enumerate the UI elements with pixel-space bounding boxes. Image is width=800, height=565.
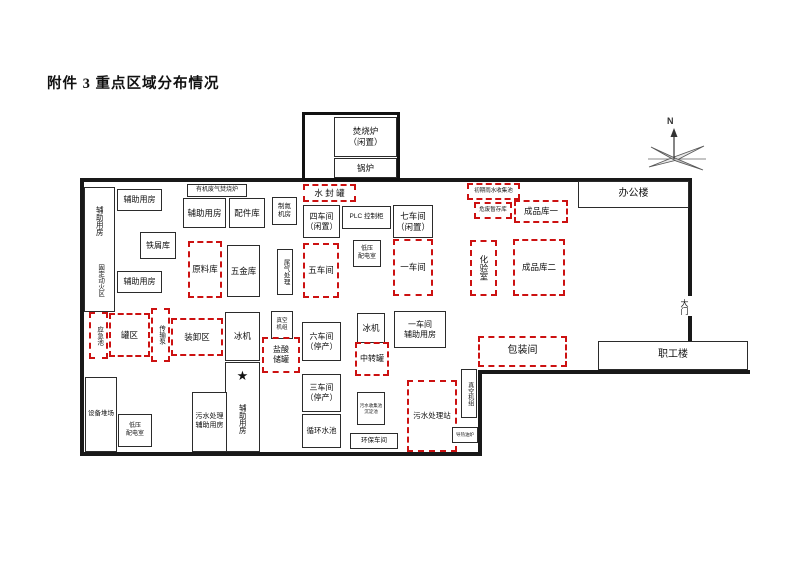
aux-room-north: 辅助用房 — [183, 198, 226, 228]
aux-room-west-label: 辅助用房 — [124, 277, 156, 287]
raw-material-warehouse: 原料库 — [188, 241, 222, 298]
workshop-7-idle: 七车间（闲置） — [393, 205, 433, 238]
compass: N — [648, 118, 708, 180]
tail-gas-treatment: 尾气处理 — [277, 249, 293, 295]
workshop-6-stopped-label: （停产） — [306, 342, 338, 352]
tank-farm: 罐区 — [109, 313, 150, 357]
hydrochloric-acid-tank: 盐酸储罐 — [262, 337, 300, 373]
loading-unloading-area: 装卸区 — [171, 318, 223, 356]
wall-bottom — [80, 452, 482, 456]
transfer-tank: 中转罐 — [355, 342, 389, 376]
aux-room-south-label: 辅助用房 — [238, 404, 247, 434]
staff-building: 职工楼 — [598, 341, 748, 370]
aux-room-west: 辅助用房 — [117, 271, 162, 293]
fixed-hotwork-zone: 固定动火区 — [88, 251, 111, 309]
aux-room-north-label: 辅助用房 — [187, 208, 221, 219]
transfer-tank-label: 中转罐 — [360, 354, 384, 364]
vacuum-unit-center: 真空机组 — [271, 311, 293, 339]
aux-room-south: 辅助用房 — [230, 390, 255, 448]
circulating-water-pool-label: 循环水池 — [307, 426, 337, 435]
incinerator-idle-label: （闲置） — [348, 137, 382, 148]
vacuum-unit-center-label: 真空 — [276, 318, 287, 325]
workshop-1-label: 一车间 — [400, 262, 426, 273]
vacuum-unit-east-label: 真空机组 — [465, 382, 473, 406]
transfer-pump-label: 传输泵 — [156, 325, 164, 345]
finished-goods-warehouse-2: 成品库二 — [513, 239, 565, 296]
sewage-treatment-aux-room: 污水处理辅助用房 — [192, 392, 227, 452]
workshop-3-stopped-label: （停产） — [306, 393, 338, 403]
initial-rainwater-pool: 初期雨水收集池 — [467, 183, 520, 200]
lv-distribution-room-south-label: 配电室 — [126, 431, 144, 439]
sewage-treatment-station: 污水处理站 — [407, 380, 457, 452]
vacuum-unit-east: 真空机组 — [461, 369, 477, 418]
laboratory-label: 化验室 — [478, 255, 489, 281]
compass-north-label: N — [667, 116, 674, 126]
parts-warehouse: 配件库 — [229, 198, 265, 228]
hydrochloric-acid-tank-label: 盐酸 — [273, 345, 289, 355]
chiller-west-label: 冰机 — [234, 331, 251, 342]
workshop-3-stopped-label: 三车间 — [310, 383, 334, 393]
sewage-treatment-aux-room-label: 污水处理 — [196, 413, 224, 422]
lv-distribution-room-north: 低压配电室 — [353, 240, 381, 267]
plc-control-cabinet-label: PLC 控制柜 — [350, 213, 384, 221]
fixed-hotwork-zone-label: 固定动火区 — [95, 264, 103, 297]
workshop-4-idle: 四车间（闲置） — [303, 205, 340, 238]
wall-notch-horizontal — [478, 370, 750, 374]
tank-farm-label: 罐区 — [121, 330, 138, 341]
boiler-label: 锅炉 — [357, 163, 374, 174]
organic-waste-gas-furnace: 有机废气焚烧炉 — [187, 184, 247, 197]
workshop-1-aux-room-label: 辅助用房 — [404, 330, 436, 340]
lv-distribution-room-south-label: 低压 — [129, 423, 141, 431]
workshop-5-label: 五车间 — [308, 265, 334, 276]
finished-goods-warehouse-1-label: 成品库一 — [524, 206, 558, 217]
page-title: 附件 3 重点区域分布情况 — [47, 72, 220, 93]
workshop-5: 五车间 — [303, 243, 339, 298]
water-seal-tank: 水 封 罐 — [303, 184, 356, 202]
workshop-7-idle-label: （闲置） — [396, 222, 430, 233]
nitrogen-generator-room-label: 制氮 — [278, 203, 291, 211]
chiller-center: 冰机 — [357, 313, 385, 343]
lv-distribution-room-north-label: 低压 — [361, 246, 373, 254]
finished-goods-warehouse-1: 成品库一 — [514, 200, 568, 223]
workshop-4-idle-label: （闲置） — [306, 222, 338, 232]
staff-building-label: 职工楼 — [658, 349, 688, 362]
emergency-pool: 应急池 — [89, 312, 108, 359]
aux-room-tall-label-label: 辅助用房 — [95, 206, 104, 236]
heat-oil-furnace: 导热油炉 — [452, 427, 478, 443]
workshop-6-stopped-label: 六车间 — [310, 332, 334, 342]
star-icon: ★ — [229, 366, 256, 386]
site-plan-page: 附件 3 重点区域分布情况 N 焚烧炉（闲置）锅炉辅助用房固定动火区辅助用房铁屑… — [0, 0, 800, 565]
workshop-3-stopped: 三车间（停产） — [302, 374, 341, 412]
sewage-treatment-aux-room-label: 辅助用房 — [196, 422, 224, 431]
raw-material-warehouse-label: 原料库 — [192, 264, 218, 275]
laboratory: 化验室 — [470, 240, 497, 296]
star-icon-label: ★ — [237, 368, 249, 384]
incinerator-idle-label: 焚烧炉 — [353, 126, 379, 137]
main-gate-label: 大门 — [679, 299, 689, 315]
parts-warehouse-label: 配件库 — [234, 208, 260, 219]
plc-control-cabinet: PLC 控制柜 — [342, 206, 391, 229]
initial-rainwater-pool-label: 初期雨水收集池 — [474, 188, 513, 195]
environmental-workshop-label: 环保车间 — [361, 437, 387, 445]
hazardous-waste-storage-label: 危废暂存库 — [479, 207, 507, 214]
packing-room: 包装间 — [478, 336, 567, 367]
wall-notch-vertical — [478, 370, 482, 456]
aux-room-northwest: 辅助用房 — [117, 189, 162, 211]
equipment-yard-label: 设备堆场 — [88, 410, 114, 418]
organic-waste-gas-furnace-label: 有机废气焚烧炉 — [196, 187, 238, 195]
hardware-warehouse: 五金库 — [227, 245, 260, 297]
circulating-water-pool: 循环水池 — [302, 414, 341, 448]
sewage-treatment-station-label: 污水处理站 — [413, 411, 451, 420]
aux-room-northwest-label: 辅助用房 — [124, 195, 156, 205]
office-building: 办公楼 — [578, 181, 689, 208]
loading-unloading-area-label: 装卸区 — [184, 332, 210, 343]
hazardous-waste-storage: 危废暂存库 — [474, 202, 512, 219]
transfer-pump: 传输泵 — [151, 308, 170, 362]
finished-goods-warehouse-2-label: 成品库二 — [522, 262, 556, 273]
chiller-west: 冰机 — [225, 312, 260, 361]
lv-distribution-room-south: 低压配电室 — [118, 414, 152, 447]
workshop-4-idle-label: 四车间 — [310, 212, 334, 222]
incinerator-idle: 焚烧炉（闲置） — [334, 117, 397, 157]
workshop-1-aux-room-label: 一车间 — [408, 320, 432, 330]
workshop-1: 一车间 — [393, 239, 433, 296]
lv-distribution-room-north-label: 配电室 — [358, 254, 376, 262]
equipment-yard: 设备堆场 — [85, 377, 117, 452]
main-gate: 大门 — [676, 293, 692, 321]
emergency-pool-label: 应急池 — [94, 326, 102, 346]
workshop-6-stopped: 六车间（停产） — [302, 322, 341, 361]
hydrochloric-acid-tank-label: 储罐 — [273, 355, 289, 365]
wastewater-collect-pool: 污水收集池沉淀池 — [357, 392, 385, 425]
workshop-1-aux-room: 一车间辅助用房 — [394, 311, 446, 348]
tail-gas-treatment-label: 尾气处理 — [281, 259, 289, 285]
nitrogen-generator-room-label: 机房 — [278, 211, 291, 219]
compass-icon — [648, 128, 706, 178]
heat-oil-furnace-label: 导热油炉 — [456, 432, 474, 438]
vacuum-unit-center-label: 机组 — [276, 325, 287, 332]
packing-room-label: 包装间 — [508, 345, 538, 358]
water-seal-tank-label: 水 封 罐 — [314, 188, 344, 199]
workshop-7-idle-label: 七车间 — [400, 211, 426, 222]
aux-room-tall-label: 辅助用房 — [88, 193, 111, 249]
hardware-warehouse-label: 五金库 — [231, 266, 257, 277]
office-building-label: 办公楼 — [619, 188, 649, 201]
wastewater-collect-pool-label: 沉淀池 — [364, 409, 378, 415]
scrap-store-label: 铁屑库 — [146, 241, 170, 251]
nitrogen-generator-room: 制氮机房 — [272, 197, 297, 225]
boiler: 锅炉 — [334, 158, 397, 178]
environmental-workshop: 环保车间 — [350, 433, 398, 449]
chiller-center-label: 冰机 — [362, 323, 379, 334]
scrap-store: 铁屑库 — [140, 232, 176, 259]
